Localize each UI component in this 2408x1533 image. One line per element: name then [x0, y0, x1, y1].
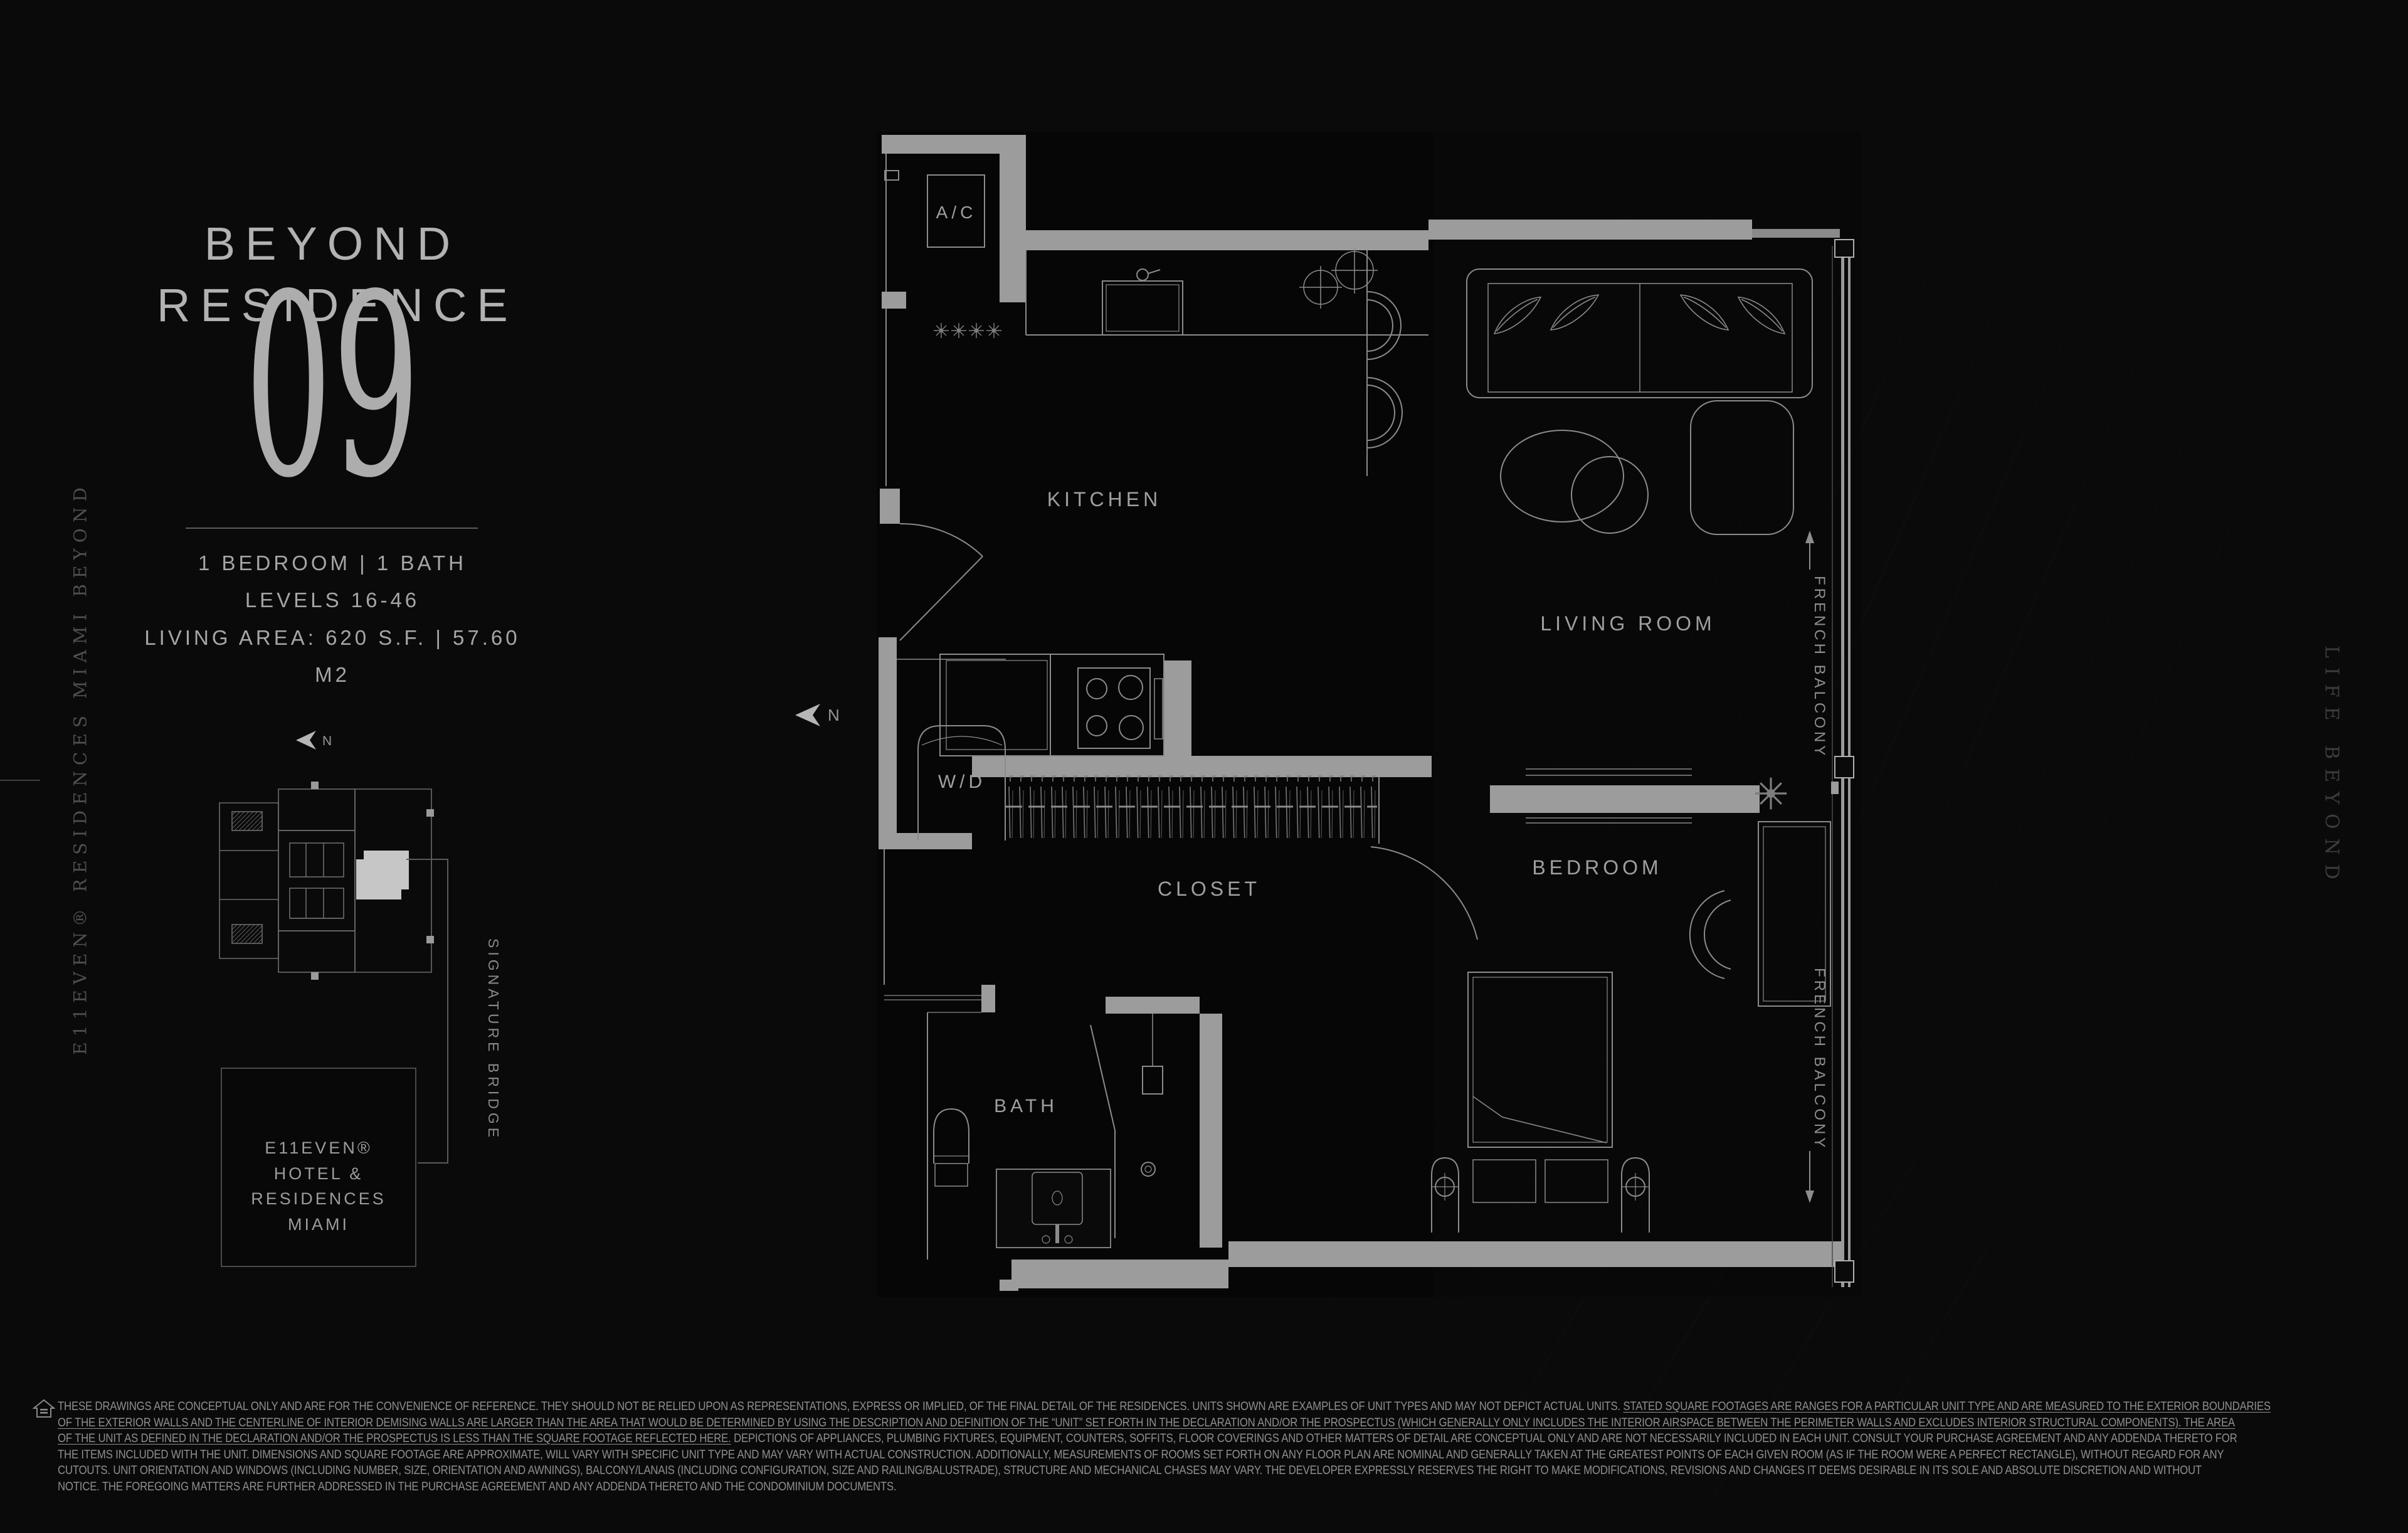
signature-bridge-label: SIGNATURE BRIDGE	[485, 938, 502, 1141]
brand-box-line1: E11EVEN®	[222, 1135, 415, 1161]
disclaimer-line: THESE DRAWINGS ARE CONCEPTUAL ONLY AND A…	[58, 1399, 2356, 1415]
legal-disclaimer: THESE DRAWINGS ARE CONCEPTUAL ONLY AND A…	[58, 1399, 2356, 1495]
disclaimer-line: OF THE EXTERIOR WALLS AND THE CENTERLINE…	[58, 1415, 2356, 1431]
plan-north-label: N	[828, 706, 840, 724]
plan-north-arrow-icon: N	[791, 701, 848, 729]
spec-beds-baths: 1 BEDROOM | 1 BATH	[138, 544, 527, 581]
disclaimer-line: THE ITEMS INCLUDED WITH THE UNIT. DIMENS…	[58, 1447, 2356, 1463]
left-vertical-caption: E11EVEN® RESIDENCES MIAMI BEYOND	[70, 482, 91, 1055]
label-ac: A/C	[936, 203, 977, 222]
left-edge-tick	[0, 780, 40, 781]
label-bath: BATH	[994, 1096, 1058, 1117]
disclaimer-line: NOTICE. THE FOREGOING MATTERS ARE FURTHE…	[58, 1479, 2356, 1495]
right-vertical-caption: LIFE BEYOND	[2321, 645, 2343, 889]
vanity	[996, 1169, 1111, 1248]
keyplan-unit-highlight	[356, 851, 409, 899]
brand-box-line3: MIAMI	[222, 1212, 415, 1238]
brand-box: E11EVEN® HOTEL & RESIDENCES MIAMI	[221, 1068, 416, 1267]
keyplan-north-arrow-icon: N	[293, 729, 337, 751]
label-closet: CLOSET	[1158, 878, 1260, 900]
label-bedroom: BEDROOM	[1532, 856, 1662, 879]
label-french-balcony-lower: FRENCH BALCONY	[1811, 968, 1828, 1150]
label-french-balcony-upper: FRENCH BALCONY	[1811, 576, 1828, 758]
spec-living-area: LIVING AREA: 620 S.F. | 57.60 M2	[138, 619, 527, 694]
label-living-room: LIVING ROOM	[1540, 612, 1715, 635]
unit-specs: 1 BEDROOM | 1 BATH LEVELS 16-46 LIVING A…	[138, 544, 527, 694]
brochure-page: BEYOND RESIDENCE 09 1 BEDROOM | 1 BATH L…	[0, 0, 2408, 1533]
keyplan-north-label: N	[322, 734, 332, 748]
title-divider	[186, 528, 478, 529]
plan-floor-left	[877, 132, 1434, 1297]
floor-plan: A/C KITCHEN LIVING ROOM W/D CLOSET BEDRO…	[877, 132, 1861, 1298]
unit-number: 09	[236, 284, 429, 492]
spec-levels: LEVELS 16-46	[138, 581, 527, 618]
disclaimer-line: CUTOUTS. UNIT ORIENTATION AND WINDOWS (I…	[58, 1463, 2356, 1479]
label-wd: W/D	[938, 772, 986, 792]
label-kitchen: KITCHEN	[1047, 488, 1161, 511]
equal-housing-icon	[33, 1399, 55, 1419]
brand-box-line2: HOTEL & RESIDENCES	[222, 1161, 415, 1212]
plan-floor-right	[1434, 132, 1861, 1297]
disclaimer-line: OF THE UNIT AS DEFINED IN THE DECLARATIO…	[58, 1431, 2356, 1447]
